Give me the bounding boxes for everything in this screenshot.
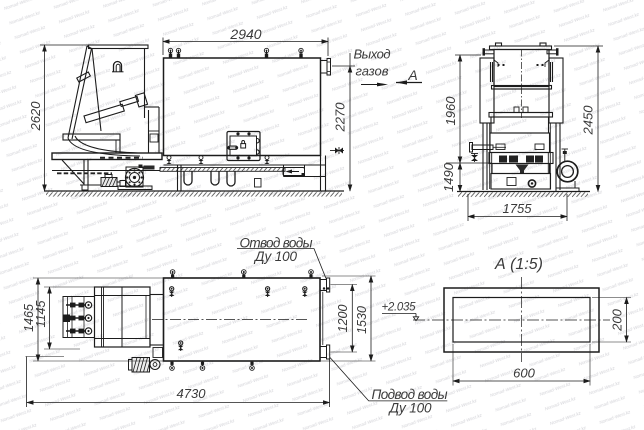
svg-text:2940: 2940 — [229, 26, 261, 42]
svg-text:1755: 1755 — [503, 201, 533, 216]
svg-text:Выход: Выход — [354, 47, 391, 62]
svg-text:1200: 1200 — [336, 305, 350, 333]
svg-text:+2.035: +2.035 — [382, 302, 417, 314]
svg-text:1490: 1490 — [441, 162, 456, 192]
svg-text:2450: 2450 — [581, 105, 596, 136]
svg-text:Ду 100: Ду 100 — [388, 401, 432, 416]
svg-text:200: 200 — [610, 308, 625, 331]
svg-text:Ду 100: Ду 100 — [253, 249, 297, 264]
svg-text:4730: 4730 — [177, 386, 207, 401]
svg-text:А: А — [407, 67, 417, 83]
svg-text:1960: 1960 — [443, 96, 458, 126]
svg-text:2620: 2620 — [28, 101, 43, 132]
svg-text:2270: 2270 — [333, 102, 348, 133]
svg-text:1530: 1530 — [355, 306, 369, 334]
svg-text:600: 600 — [513, 366, 535, 381]
svg-text:А (1:5): А (1:5) — [494, 256, 543, 273]
svg-text:газов: газов — [356, 64, 389, 79]
svg-text:1145: 1145 — [34, 301, 48, 328]
